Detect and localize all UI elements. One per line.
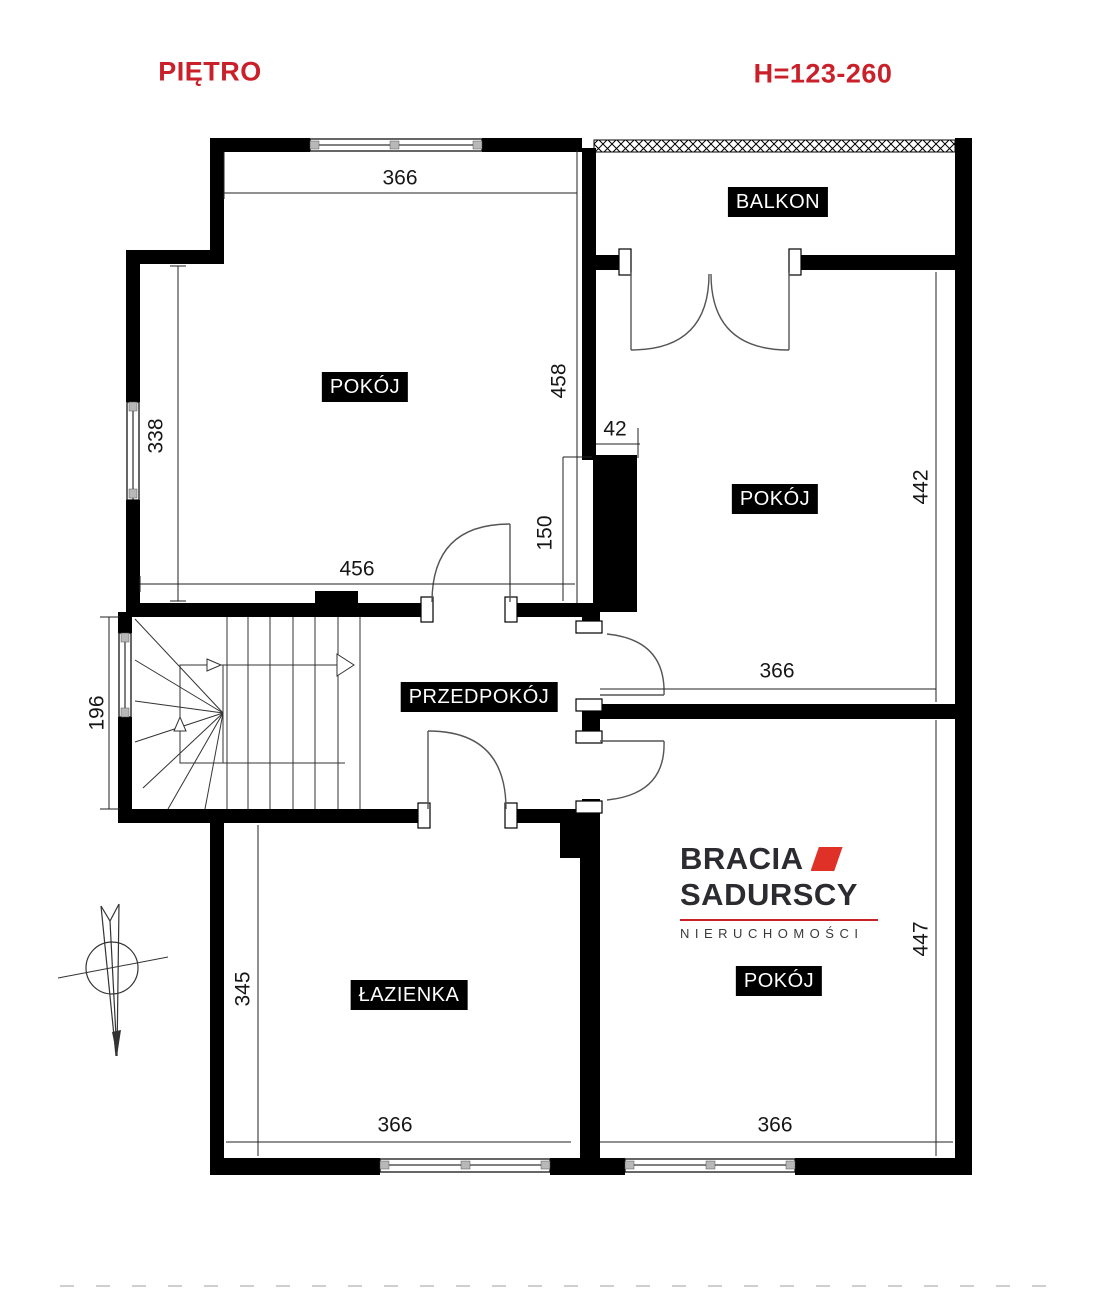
dim-tr-bottom: 366 xyxy=(759,661,794,682)
dimension-lines xyxy=(100,150,953,1156)
door-balcony-double xyxy=(631,272,789,350)
door-top-right-room xyxy=(600,634,664,695)
dim-tl-left: 338 xyxy=(146,418,167,453)
logo-rule xyxy=(680,919,878,921)
dim-br-right: 447 xyxy=(911,921,932,956)
logo-line2: SADURSCY xyxy=(680,877,858,913)
staircase xyxy=(135,617,360,809)
room-label-top-right: POKÓJ xyxy=(732,484,818,514)
walls xyxy=(118,138,972,1175)
floor-plan-page: PIĘTRO H=123-260 POKÓJ BALKON POKÓJ PRZE… xyxy=(0,0,1109,1293)
dim-bath-left: 345 xyxy=(233,971,254,1006)
dim-pillar-height: 150 xyxy=(535,515,556,550)
room-label-hallway: PRZEDPOKÓJ xyxy=(401,682,558,712)
page-title: PIĘTRO xyxy=(158,59,262,86)
dim-bath-bottom: 366 xyxy=(377,1115,412,1136)
logo-line1: BRACIA xyxy=(680,841,804,877)
room-label-top-left: POKÓJ xyxy=(322,372,408,402)
dim-tl-right: 458 xyxy=(549,363,570,398)
room-label-bathroom: ŁAZIENKA xyxy=(351,980,468,1010)
agency-logo: BRACIA SADURSCY NIERUCHOMOŚCI xyxy=(680,841,885,941)
window-bottom-bathroom xyxy=(380,1159,550,1172)
window-left-upper xyxy=(127,402,139,500)
floor-plan-drawing xyxy=(0,0,1109,1293)
logo-flag-icon xyxy=(811,847,843,871)
window-top xyxy=(310,139,482,151)
height-note: H=123-260 xyxy=(754,61,893,88)
north-arrow-icon xyxy=(58,904,168,1056)
logo-tagline: NIERUCHOMOŚCI xyxy=(680,926,885,941)
door-bottom-right-room xyxy=(600,741,664,800)
dim-tl-top: 366 xyxy=(382,168,417,189)
dim-tr-right: 442 xyxy=(911,469,932,504)
window-left-stairs xyxy=(119,633,131,717)
room-label-bottom-right: POKÓJ xyxy=(736,966,822,996)
balcony-parapet-hatch xyxy=(594,140,955,152)
dim-stairs-left: 196 xyxy=(87,695,108,730)
dim-pillar-width: 42 xyxy=(603,419,626,440)
dim-tl-bottom: 456 xyxy=(339,559,374,580)
door-bathroom xyxy=(428,731,506,809)
door-top-left-room xyxy=(432,524,510,602)
dim-br-bottom: 366 xyxy=(757,1115,792,1136)
window-bottom-room xyxy=(625,1159,795,1172)
room-label-balcony: BALKON xyxy=(728,187,828,217)
